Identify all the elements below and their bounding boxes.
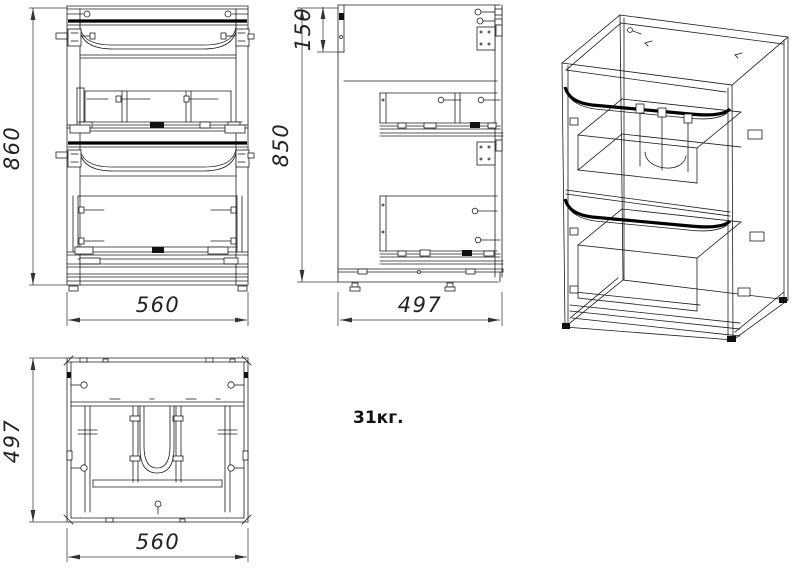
- dim-top-depth: 497: [0, 419, 24, 464]
- front-dimension-height: 860: [0, 8, 67, 285]
- top-view: 497 560: [0, 356, 251, 562]
- front-drawer-bottom: [56, 143, 254, 267]
- dim-top-width: 560: [136, 530, 181, 554]
- dim-front-height: 860: [0, 126, 24, 171]
- front-plinth: [67, 274, 248, 291]
- top-dimension-width: 560: [67, 528, 248, 562]
- dim-side-top: 150: [291, 7, 315, 52]
- front-view: 860 560: [0, 6, 254, 326]
- top-dimension-depth: 497: [0, 358, 67, 522]
- iso-box-edges: [562, 15, 788, 340]
- drawing-page: 860 560: [0, 0, 800, 569]
- front-dimension-width: 560: [67, 292, 248, 326]
- technical-drawing: 860 560: [0, 0, 800, 569]
- side-dimension-depth: 497: [338, 292, 502, 326]
- front-drawer-top: [56, 21, 254, 58]
- top-carcass: [64, 356, 251, 524]
- dim-side-depth: 497: [398, 293, 443, 317]
- side-dimension-top: 150: [291, 7, 344, 52]
- side-hinge-brackets: [477, 25, 502, 165]
- isometric-view: [562, 15, 788, 342]
- front-carcass: [67, 6, 248, 285]
- side-bottom-feet: [338, 269, 503, 291]
- side-drawerbox-lower: [380, 196, 503, 264]
- dim-front-width: 560: [136, 293, 181, 317]
- weight-label: 31кг.: [353, 408, 404, 428]
- side-drawerbox-upper: [380, 93, 503, 136]
- front-inner-drawerbox: [67, 88, 248, 133]
- iso-inner-structure: [562, 99, 787, 342]
- top-sink-cutout: [93, 406, 222, 487]
- dim-side-height: 850: [269, 123, 293, 168]
- side-view: 850 150 497: [269, 5, 503, 326]
